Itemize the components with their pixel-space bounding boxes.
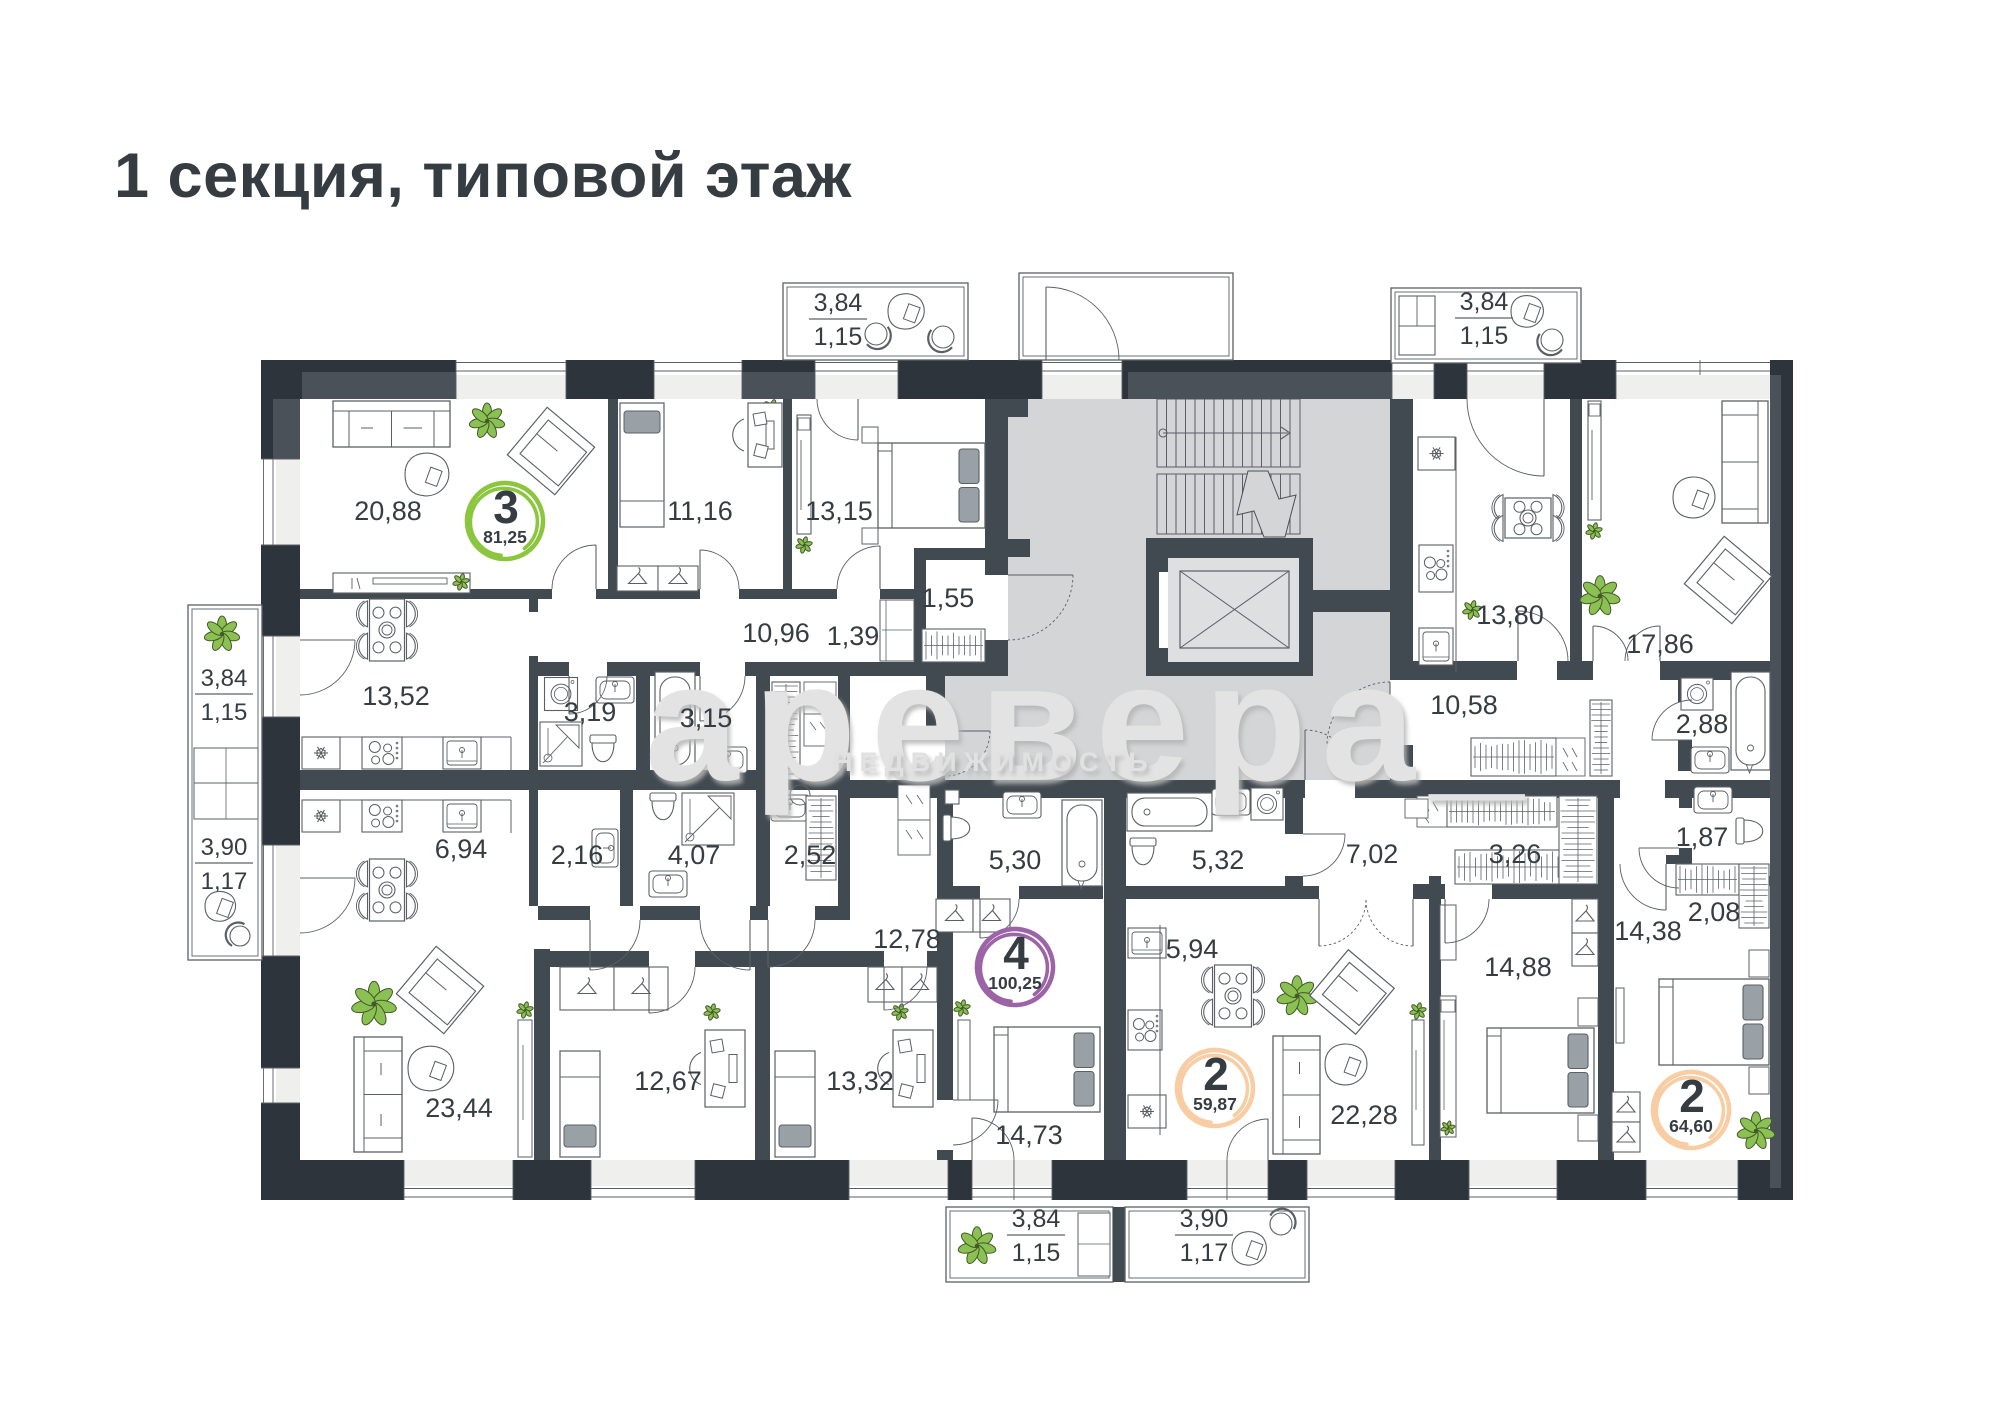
svg-text:3,19: 3,19: [564, 697, 617, 727]
svg-text:59,87: 59,87: [1193, 1094, 1237, 1114]
svg-text:1,15: 1,15: [201, 699, 248, 726]
svg-text:1,15: 1,15: [1012, 1239, 1061, 1267]
svg-text:17,86: 17,86: [1626, 629, 1694, 659]
svg-text:3,84: 3,84: [1012, 1205, 1061, 1233]
svg-text:4,07: 4,07: [668, 840, 721, 870]
svg-text:1,15: 1,15: [1460, 322, 1509, 350]
svg-text:3,26: 3,26: [1489, 839, 1542, 869]
svg-text:2,16: 2,16: [551, 840, 604, 870]
svg-text:3,90: 3,90: [201, 834, 248, 861]
svg-text:5,32: 5,32: [1192, 845, 1245, 875]
svg-text:11,16: 11,16: [667, 496, 733, 526]
svg-text:64,60: 64,60: [1669, 1116, 1713, 1136]
svg-text:2,52: 2,52: [784, 840, 837, 870]
svg-text:22,28: 22,28: [1330, 1100, 1398, 1130]
svg-text:12,67: 12,67: [634, 1066, 702, 1096]
svg-text:3,90: 3,90: [1180, 1205, 1229, 1233]
svg-text:14,38: 14,38: [1614, 916, 1682, 946]
svg-text:2,88: 2,88: [1676, 709, 1729, 739]
svg-text:7,02: 7,02: [1346, 839, 1399, 869]
svg-text:100,25: 100,25: [988, 973, 1042, 993]
svg-text:81,25: 81,25: [483, 527, 527, 547]
svg-text:1 секция, типовой этаж: 1 секция, типовой этаж: [114, 141, 852, 211]
svg-text:4: 4: [1003, 927, 1029, 979]
svg-text:13,80: 13,80: [1476, 600, 1544, 630]
svg-text:2: 2: [1203, 1048, 1229, 1100]
svg-text:3,84: 3,84: [201, 665, 248, 692]
svg-text:1,17: 1,17: [1180, 1239, 1229, 1267]
svg-text:1,55: 1,55: [922, 583, 975, 613]
svg-text:6,94: 6,94: [435, 834, 488, 864]
svg-text:3,15: 3,15: [680, 703, 733, 733]
svg-text:20,88: 20,88: [354, 496, 422, 526]
svg-text:аревера_: аревера_: [645, 628, 1538, 816]
svg-text:14,88: 14,88: [1484, 952, 1552, 982]
svg-text:12,78: 12,78: [873, 924, 941, 954]
svg-text:23,44: 23,44: [425, 1093, 493, 1123]
svg-text:3,84: 3,84: [1460, 288, 1509, 316]
svg-text:13,32: 13,32: [826, 1066, 894, 1096]
svg-text:14,73: 14,73: [995, 1120, 1063, 1150]
svg-text:1,15: 1,15: [814, 323, 863, 351]
svg-text:10,58: 10,58: [1430, 690, 1498, 720]
svg-text:1,17: 1,17: [201, 868, 248, 895]
svg-text:2: 2: [1679, 1070, 1705, 1122]
svg-text:2,08: 2,08: [1688, 897, 1741, 927]
svg-text:10,96: 10,96: [742, 618, 810, 648]
svg-text:13,15: 13,15: [805, 496, 873, 526]
svg-text:3: 3: [493, 481, 519, 533]
svg-text:5,94: 5,94: [1166, 934, 1219, 964]
svg-text:5,30: 5,30: [989, 845, 1042, 875]
svg-text:3,84: 3,84: [814, 289, 863, 317]
svg-text:1,87: 1,87: [1676, 822, 1729, 852]
svg-text:НЕДВИЖИМОСТЬ: НЕДВИЖИМОСТЬ: [833, 747, 1155, 777]
svg-text:1,39: 1,39: [827, 621, 880, 651]
svg-text:13,52: 13,52: [362, 681, 430, 711]
